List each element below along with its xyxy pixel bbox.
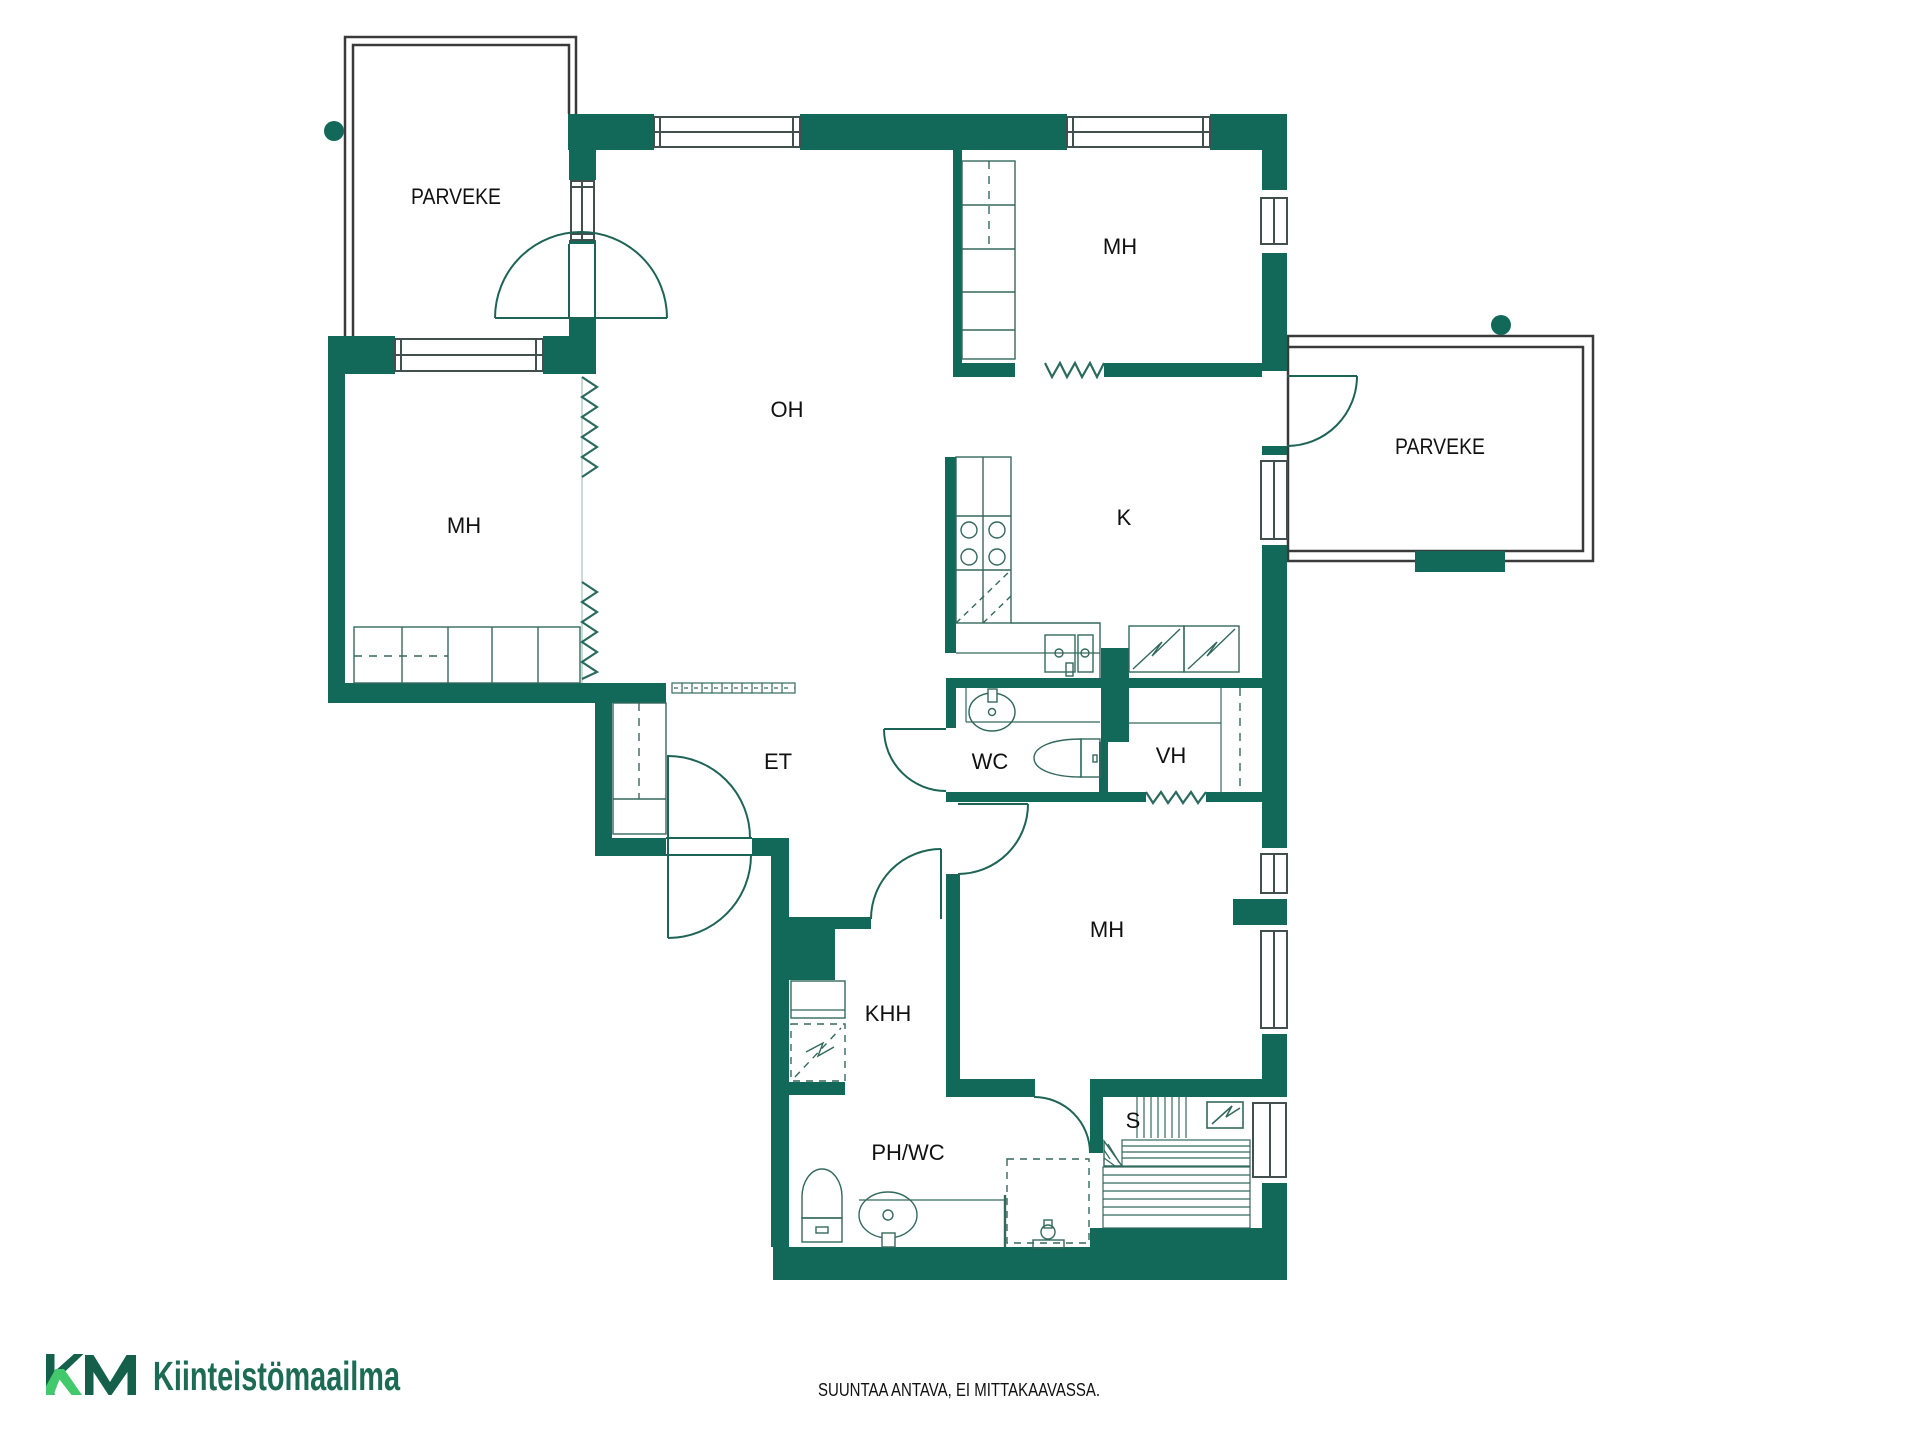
svg-text:PH/WC: PH/WC xyxy=(871,1140,944,1165)
svg-text:PARVEKE: PARVEKE xyxy=(1395,434,1485,459)
svg-text:PARVEKE: PARVEKE xyxy=(411,184,501,209)
svg-text:K: K xyxy=(1117,505,1132,530)
svg-text:MH: MH xyxy=(1090,917,1124,942)
svg-text:OH: OH xyxy=(771,397,804,422)
svg-text:SUUNTAA ANTAVA, EI MITTAKAAVAS: SUUNTAA ANTAVA, EI MITTAKAAVASSA. xyxy=(818,1380,1100,1400)
svg-text:VH: VH xyxy=(1156,743,1187,768)
svg-text:KHH: KHH xyxy=(865,1001,911,1026)
svg-text:S: S xyxy=(1126,1108,1141,1133)
svg-text:ET: ET xyxy=(764,749,792,774)
svg-text:MH: MH xyxy=(1103,234,1137,259)
svg-text:MH: MH xyxy=(447,513,481,538)
svg-text:Kiinteistömaailma: Kiinteistömaailma xyxy=(153,1353,401,1399)
svg-text:WC: WC xyxy=(972,749,1009,774)
